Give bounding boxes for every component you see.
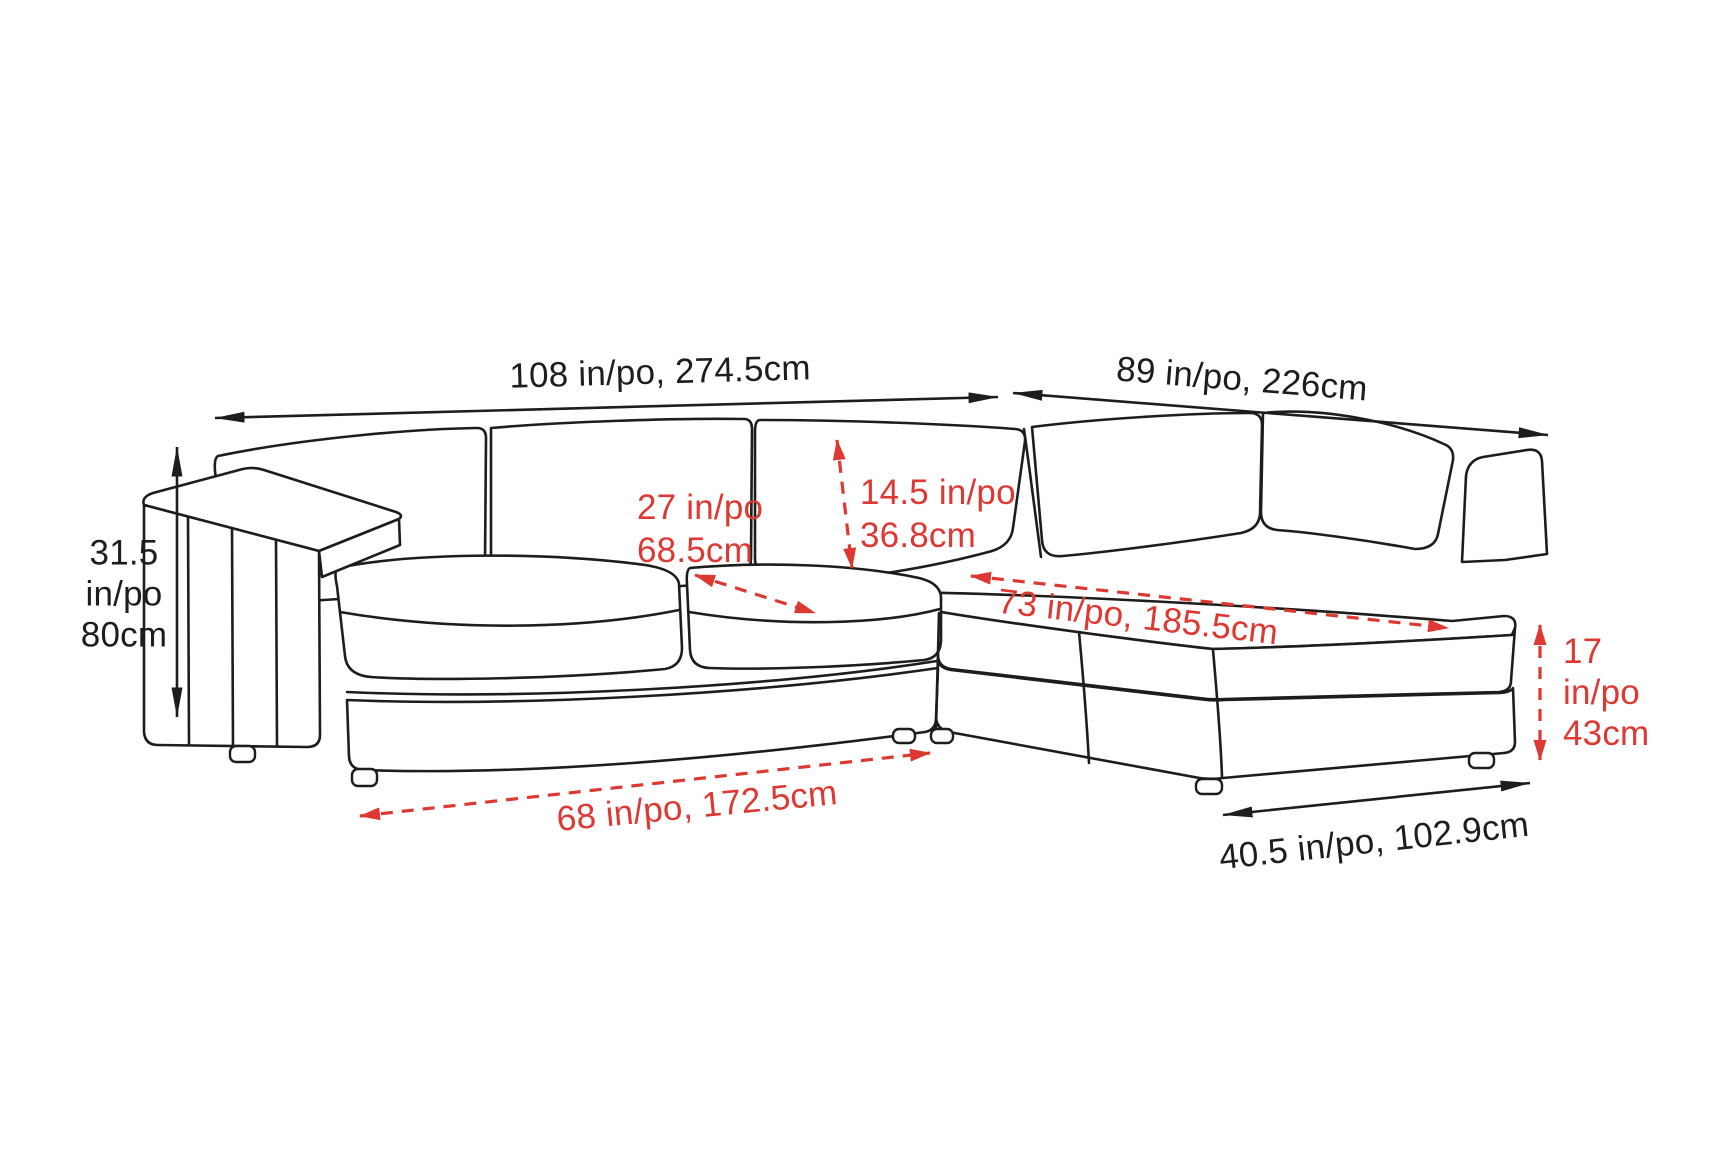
- label-overall-height-line2: in/po: [81, 574, 167, 615]
- arm-leg: [230, 746, 255, 762]
- sofa-illustration: [143, 412, 1547, 794]
- corner-leg-left: [893, 729, 915, 743]
- label-overall-height-line1: 31.5: [81, 533, 167, 574]
- label-back-cushion-height: 14.5 in/po 36.8cm: [860, 471, 1016, 557]
- arrow-left-width: [215, 397, 998, 418]
- label-back-cushion-height-line2: 36.8cm: [860, 514, 1016, 557]
- label-left-width: 108 in/po, 274.5cm: [509, 346, 811, 397]
- label-seat-height-line3: 43cm: [1563, 713, 1649, 754]
- sofa-dimension-diagram: 108 in/po, 274.5cm 89 in/po, 226cm 31.5 …: [0, 0, 1726, 1150]
- label-back-cushion-height-line1: 14.5 in/po: [860, 471, 1016, 514]
- label-seat-depth-line2: 68.5cm: [637, 529, 763, 572]
- corner-leg-right: [931, 729, 953, 743]
- sofa-line-art: [0, 0, 1726, 1150]
- label-seat-height-line2: in/po: [1563, 672, 1649, 713]
- left-base: [347, 668, 938, 771]
- label-seat-height-line1: 17: [1563, 631, 1649, 672]
- back-cushion-right-2: [1261, 412, 1453, 549]
- back-cushion-right-1: [1032, 413, 1262, 556]
- label-seat-depth: 27 in/po 68.5cm: [637, 486, 763, 572]
- right-arm: [1462, 450, 1547, 562]
- label-seat-height: 17 in/po 43cm: [1563, 631, 1649, 754]
- label-seat-depth-line1: 27 in/po: [637, 486, 763, 529]
- label-overall-height-line3: 80cm: [81, 615, 167, 656]
- label-overall-height: 31.5 in/po 80cm: [81, 533, 167, 656]
- chaise-right-leg: [1469, 753, 1494, 768]
- left-front-leg: [352, 769, 377, 786]
- chaise-front-leg: [1196, 779, 1222, 794]
